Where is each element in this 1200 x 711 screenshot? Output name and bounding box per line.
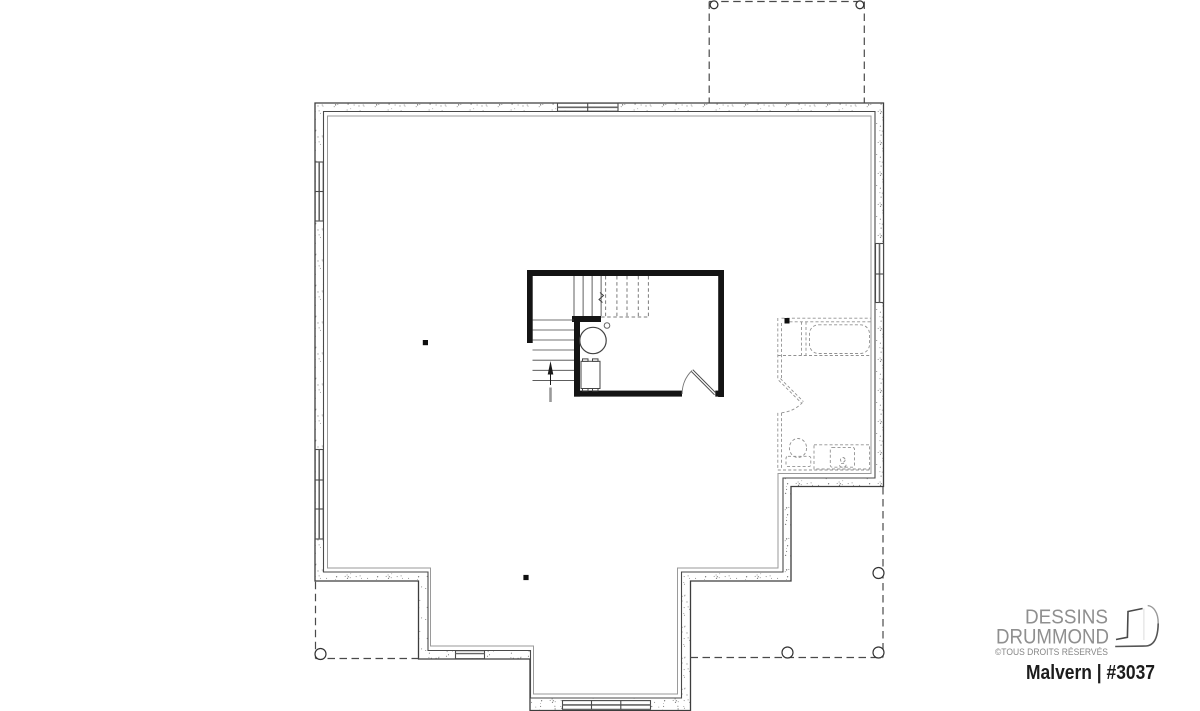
svg-text:DRUMMOND: DRUMMOND	[996, 625, 1109, 649]
svg-text:©TOUS DROITS RÉSERVÉS: ©TOUS DROITS RÉSERVÉS	[995, 647, 1108, 658]
svg-text:Malvern | #3037: Malvern | #3037	[1026, 662, 1155, 684]
